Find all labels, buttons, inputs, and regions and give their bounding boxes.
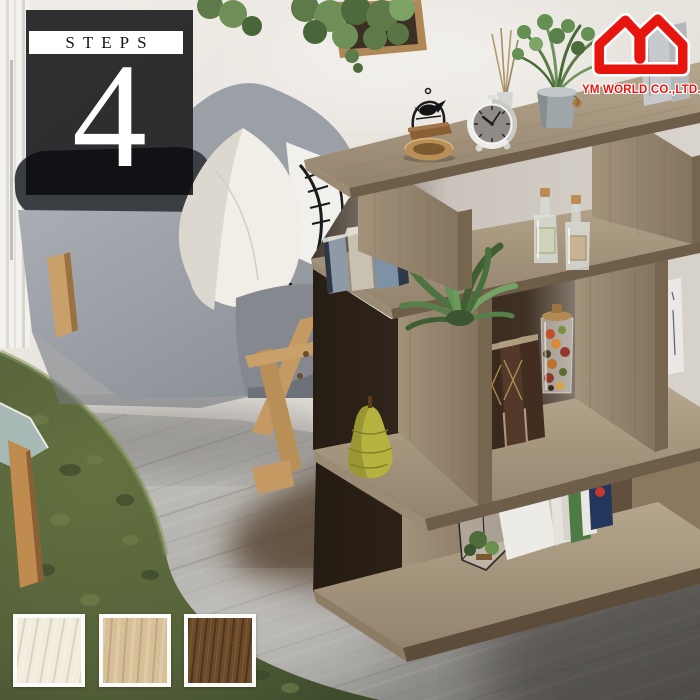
steps-badge: STEPS 4 [26, 10, 193, 195]
swatch-white-wood [13, 614, 85, 687]
wooden-bowl [403, 139, 455, 163]
product-photo: RAPUNZEL [0, 0, 700, 700]
logo-company-text: YM WORLD CO.,LTD. [582, 84, 700, 96]
brand-logo: YM WORLD CO.,LTD. [582, 8, 700, 110]
swatch-dark-walnut [184, 614, 256, 687]
logo-house-icon [585, 8, 697, 86]
swatch-natural-oak [99, 614, 171, 687]
potpourri-jar [541, 304, 573, 393]
steps-number: 4 [26, 36, 193, 196]
color-swatches [13, 614, 263, 688]
